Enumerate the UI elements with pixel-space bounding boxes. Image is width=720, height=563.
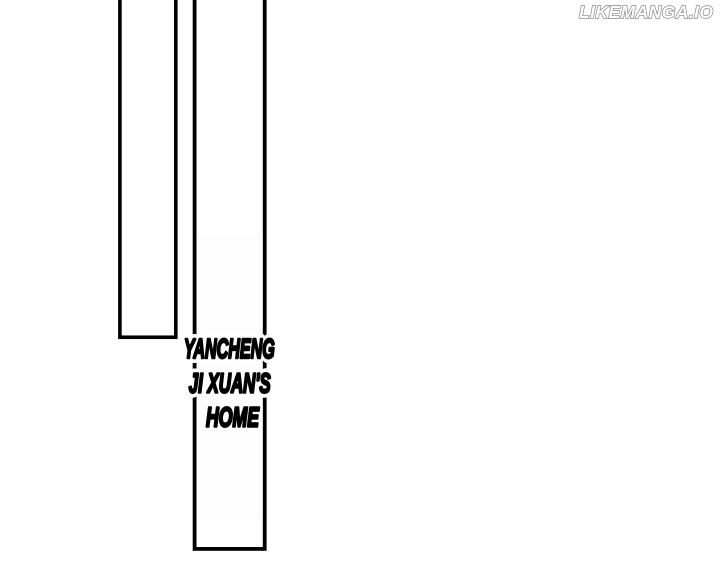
- svg-text:LIKEMANGA.IO: LIKEMANGA.IO: [579, 2, 713, 22]
- svg-text:YANCHENG: YANCHENG: [184, 332, 275, 364]
- svg-text:HOME: HOME: [206, 401, 260, 432]
- svg-text:JI XUAN'S: JI XUAN'S: [189, 367, 271, 398]
